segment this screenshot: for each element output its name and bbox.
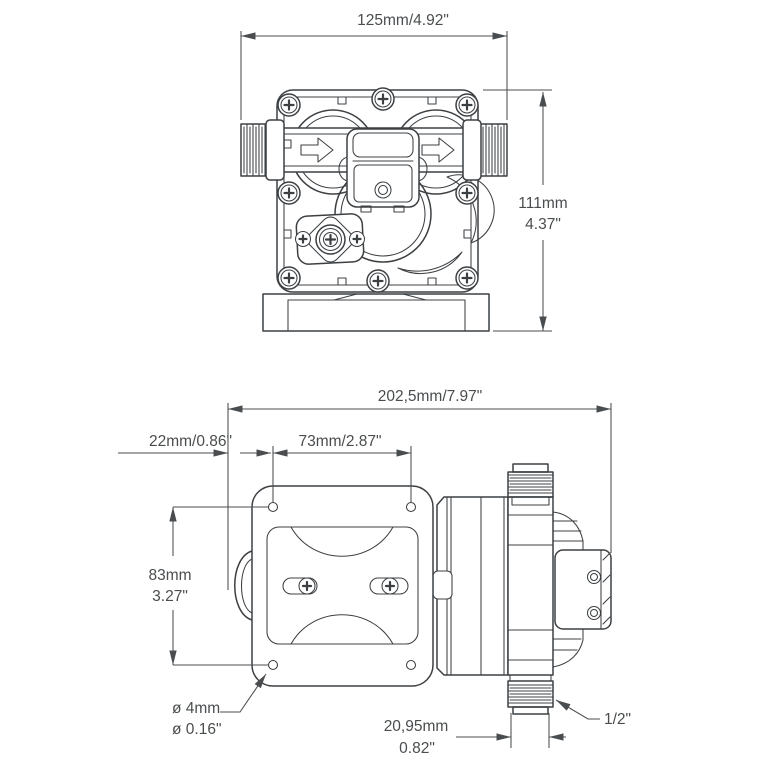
motor-block xyxy=(433,497,508,675)
front-view: 125mm/4.92" 111mm 4.37" xyxy=(241,12,568,331)
end-flange xyxy=(555,550,611,629)
screw-icon xyxy=(278,267,300,289)
flange-screw-top xyxy=(588,571,601,584)
mounting-bracket xyxy=(252,486,433,686)
wire-clip xyxy=(433,571,452,599)
dim-width-label: 125mm/4.92" xyxy=(357,12,449,29)
switch-boss xyxy=(316,225,345,254)
dim-hole-mm-label: ø 4mm xyxy=(172,700,220,717)
dim-offset-22: 22mm/0.86" xyxy=(118,433,271,453)
screw-icon xyxy=(456,94,478,116)
bracket-screw-right xyxy=(382,578,398,594)
dim-height-111: 111mm 4.37" xyxy=(483,90,568,331)
head-clamp xyxy=(339,129,427,212)
bracket-screw-left xyxy=(299,578,315,594)
screw-icon xyxy=(278,94,300,116)
dim-hole-in-label: ø 0.16" xyxy=(172,721,221,738)
dim-height-mm-label: 111mm xyxy=(518,195,567,212)
mounting-base xyxy=(263,294,489,331)
dim-port-size: 1/2" xyxy=(556,700,631,728)
dim-spacing-label: 73mm/2.87" xyxy=(298,433,381,450)
dim-offset-label: 22mm/0.86" xyxy=(149,433,232,450)
dim-bracket-height-mm-label: 83mm xyxy=(148,567,191,584)
outlet-port xyxy=(463,120,507,180)
bottom-port-threads xyxy=(508,675,553,714)
inlet-port xyxy=(241,120,284,180)
side-view: 202,5mm/7.97" 22mm/0.86" 73mm/2.87" 83mm… xyxy=(118,388,631,757)
dim-hole-dia: ø 4mm ø 0.16" xyxy=(172,674,266,738)
switch-screw-right xyxy=(350,232,365,247)
pump-dimension-drawing: 125mm/4.92" 111mm 4.37" xyxy=(0,0,768,768)
motor-end-bell xyxy=(235,551,252,620)
dim-port-size-label: 1/2" xyxy=(604,711,631,728)
pressure-switch xyxy=(296,213,365,265)
switch-screw-left xyxy=(296,232,311,247)
screw-icon xyxy=(456,267,478,289)
screw-icon xyxy=(372,88,394,110)
technical-drawing-page: 125mm/4.92" 111mm 4.37" xyxy=(0,0,768,768)
dim-height-in-label: 4.37" xyxy=(525,216,561,233)
dim-port-mm-label: 20,95mm xyxy=(384,718,449,735)
flange-screw-bottom xyxy=(588,607,601,620)
dim-bracket-height-in-label: 3.27" xyxy=(152,588,188,605)
dim-port-in-label: 0.82" xyxy=(399,740,435,757)
dim-height-83: 83mm 3.27" xyxy=(148,507,268,665)
screw-icon xyxy=(456,182,478,204)
screw-icon xyxy=(278,182,300,204)
screw-icon xyxy=(367,270,389,292)
dim-overall-label: 202,5mm/7.97" xyxy=(378,388,483,405)
dim-port-width: 20,95mm 0.82" xyxy=(384,713,566,757)
